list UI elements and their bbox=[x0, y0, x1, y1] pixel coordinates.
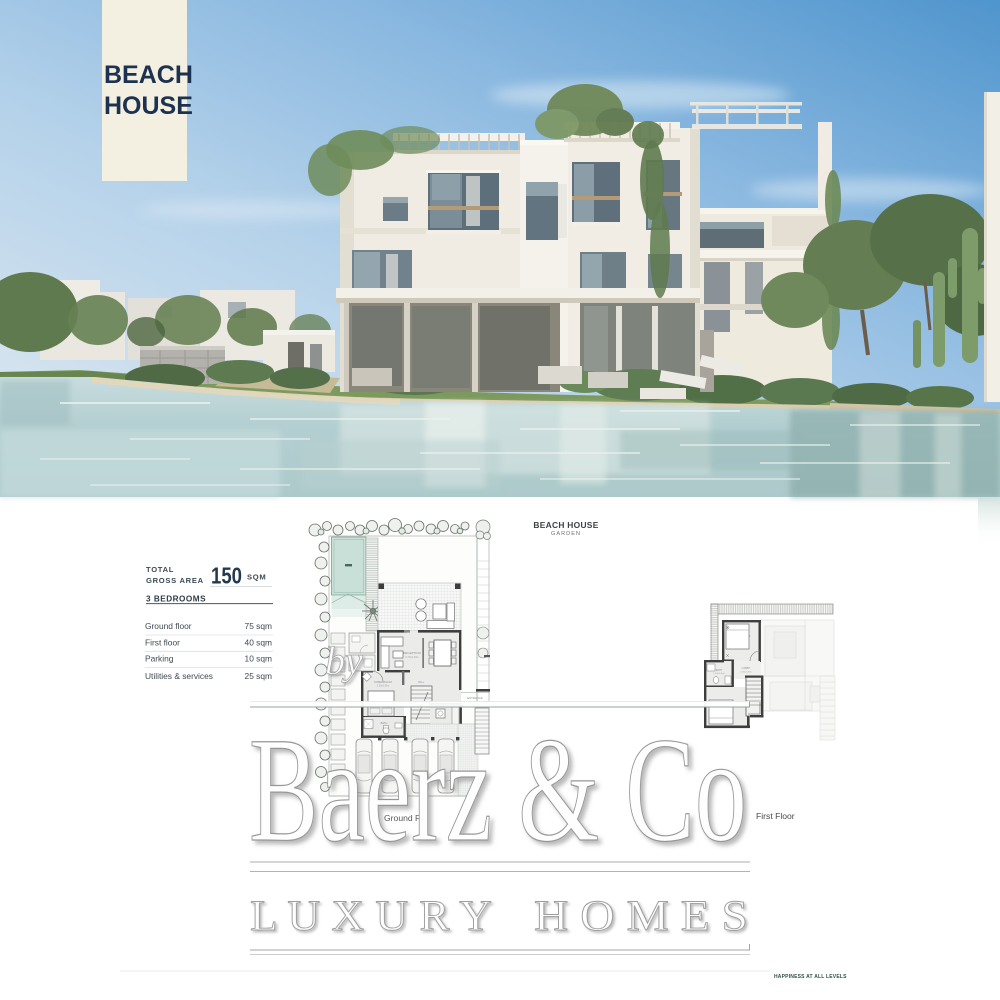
svg-text:L U X U R Y: L U X U R Y bbox=[250, 893, 492, 940]
svg-text:Baerz & Co: Baerz & Co bbox=[249, 707, 747, 873]
svg-text:HAPPINESS AT ALL LEVELS: HAPPINESS AT ALL LEVELS bbox=[774, 974, 847, 980]
svg-text:H O M E S: H O M E S bbox=[534, 893, 748, 940]
svg-text:by: by bbox=[325, 638, 363, 683]
